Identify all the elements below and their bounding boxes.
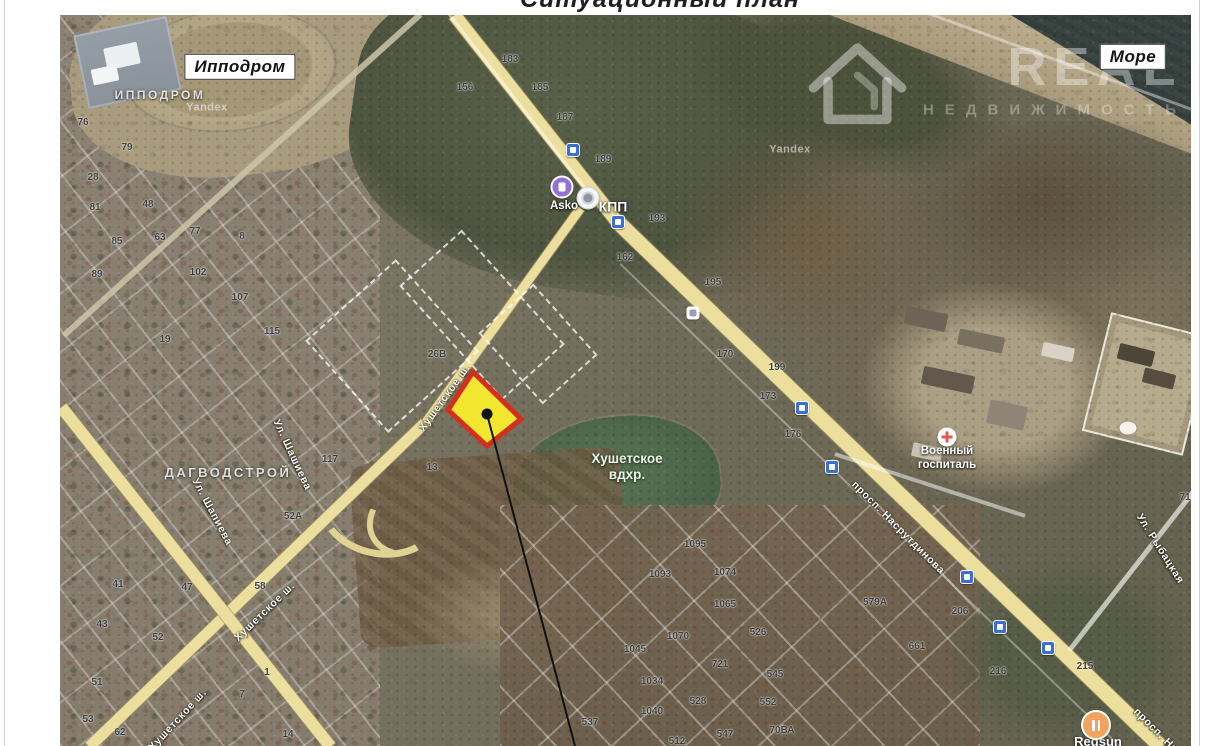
transit-icon	[1041, 641, 1055, 655]
watermark-brand-text: REAL	[1008, 36, 1183, 98]
terrain-texture-overlay	[60, 15, 1191, 746]
page-left-border	[4, 0, 5, 746]
transit-icon	[566, 143, 580, 157]
emblem-icon	[1119, 421, 1138, 436]
shield-icon	[687, 307, 700, 320]
page-title: Ситуационный план	[520, 0, 800, 14]
page: { "title": "Ситуационный план", "waterma…	[0, 0, 1206, 746]
page-right-border	[1199, 0, 1200, 746]
transit-icon	[960, 570, 974, 584]
transit-icon	[993, 620, 1007, 634]
hospital-icon	[938, 428, 957, 447]
transit-icon	[795, 401, 809, 415]
map-canvas[interactable]: REAL НЕДВИЖИМОСТЬ ИпподромМореИППОДРОМДА…	[60, 15, 1191, 746]
transit-icon	[611, 215, 625, 229]
watermark-house-icon	[805, 33, 910, 128]
fuel-icon	[551, 176, 574, 199]
watermark-subtitle-text: НЕДВИЖИМОСТЬ	[923, 102, 1187, 119]
kpp-icon	[577, 187, 600, 210]
transit-icon	[825, 460, 839, 474]
restaurant-icon	[1081, 710, 1111, 740]
